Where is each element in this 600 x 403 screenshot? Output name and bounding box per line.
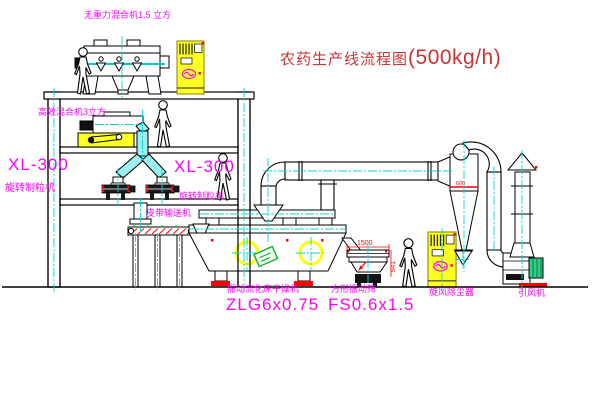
- label-granulator-center-name: 旋转制粒机: [179, 192, 224, 201]
- label-dryer-name: 振动流化床干燥机: [227, 285, 299, 294]
- vibrating-sieve: 1500 541: [347, 240, 397, 287]
- label-dryer-model: ZLG6x0.75: [226, 296, 319, 313]
- label-fan: 引风机: [518, 289, 545, 298]
- label-belt-conveyor: 皮带输送机: [146, 209, 191, 218]
- label-cyclone: 旋风除尘器: [429, 288, 474, 297]
- dim-sieve-length: 1500: [357, 240, 373, 247]
- label-gravity-free-mixer: 无重力混合机1.5 立方: [84, 11, 171, 20]
- belt-conveyor: [128, 226, 194, 288]
- label-granulator-left-model: XL-300: [8, 156, 69, 173]
- rotary-granulator-left: [102, 177, 135, 200]
- fluid-bed-dryer: [189, 205, 362, 286]
- label-granulator-left-name: 旋转制粒机: [5, 184, 55, 194]
- control-cabinet-top: [177, 41, 204, 94]
- person-figure: [400, 239, 417, 287]
- flow-diagram-canvas: 1500 541 600: [0, 0, 600, 403]
- induced-draft-fan: [503, 253, 547, 287]
- label-granulator-center-model: XL-300: [174, 158, 235, 175]
- exhaust-stack: [508, 153, 537, 257]
- page-title: 农药生产线流程图(500kg/h): [280, 47, 501, 68]
- label-mixer-3m3: 高效混合机3立方: [38, 108, 106, 117]
- label-sieve-name: 方形振动筛: [331, 285, 376, 294]
- dim-sieve-height: 541: [390, 261, 397, 272]
- label-sieve-model: FS0.6x1.5: [328, 296, 415, 313]
- rotary-granulator-right: [146, 177, 179, 200]
- exhaust-duct-pipe: [261, 161, 438, 210]
- person-figure: [155, 101, 171, 147]
- title-capacity: (500kg/h): [408, 46, 501, 69]
- title-chinese: 农药生产线流程图: [280, 51, 408, 68]
